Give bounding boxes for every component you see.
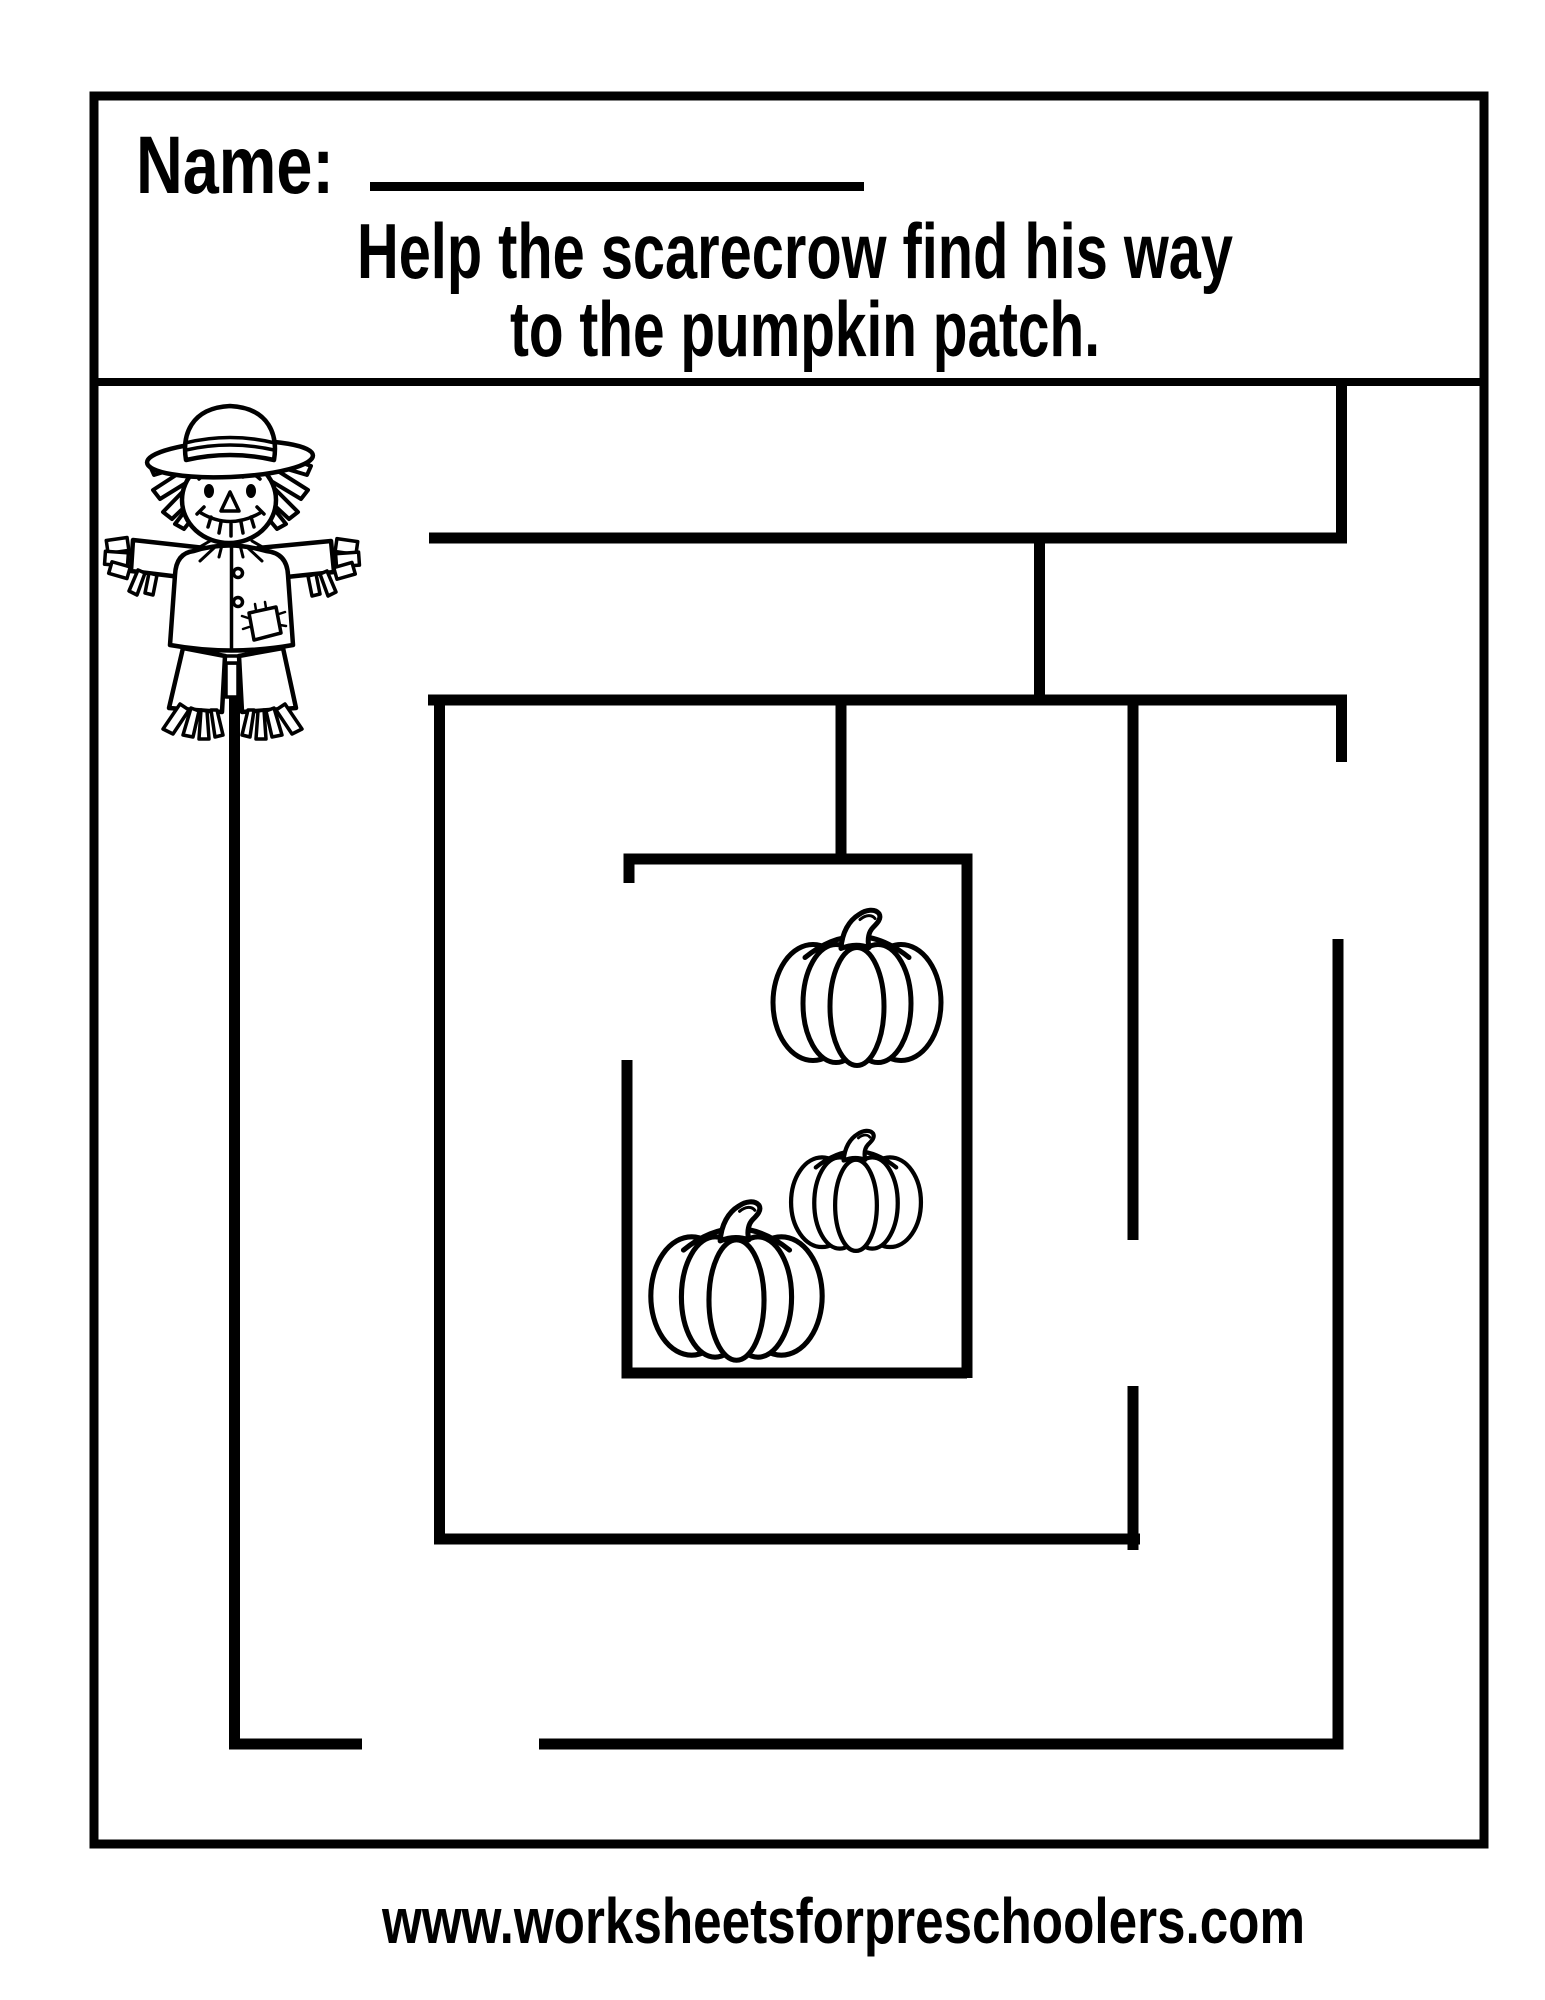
svg-text:www.worksheetsforpreschoolers.: www.worksheetsforpreschoolers.com: [381, 1885, 1305, 1957]
svg-text:to the pumpkin patch.: to the pumpkin patch.: [510, 285, 1100, 373]
svg-text:Name:: Name:: [136, 120, 334, 211]
svg-text:Help the scarecrow find his wa: Help the scarecrow find his way: [357, 207, 1233, 295]
